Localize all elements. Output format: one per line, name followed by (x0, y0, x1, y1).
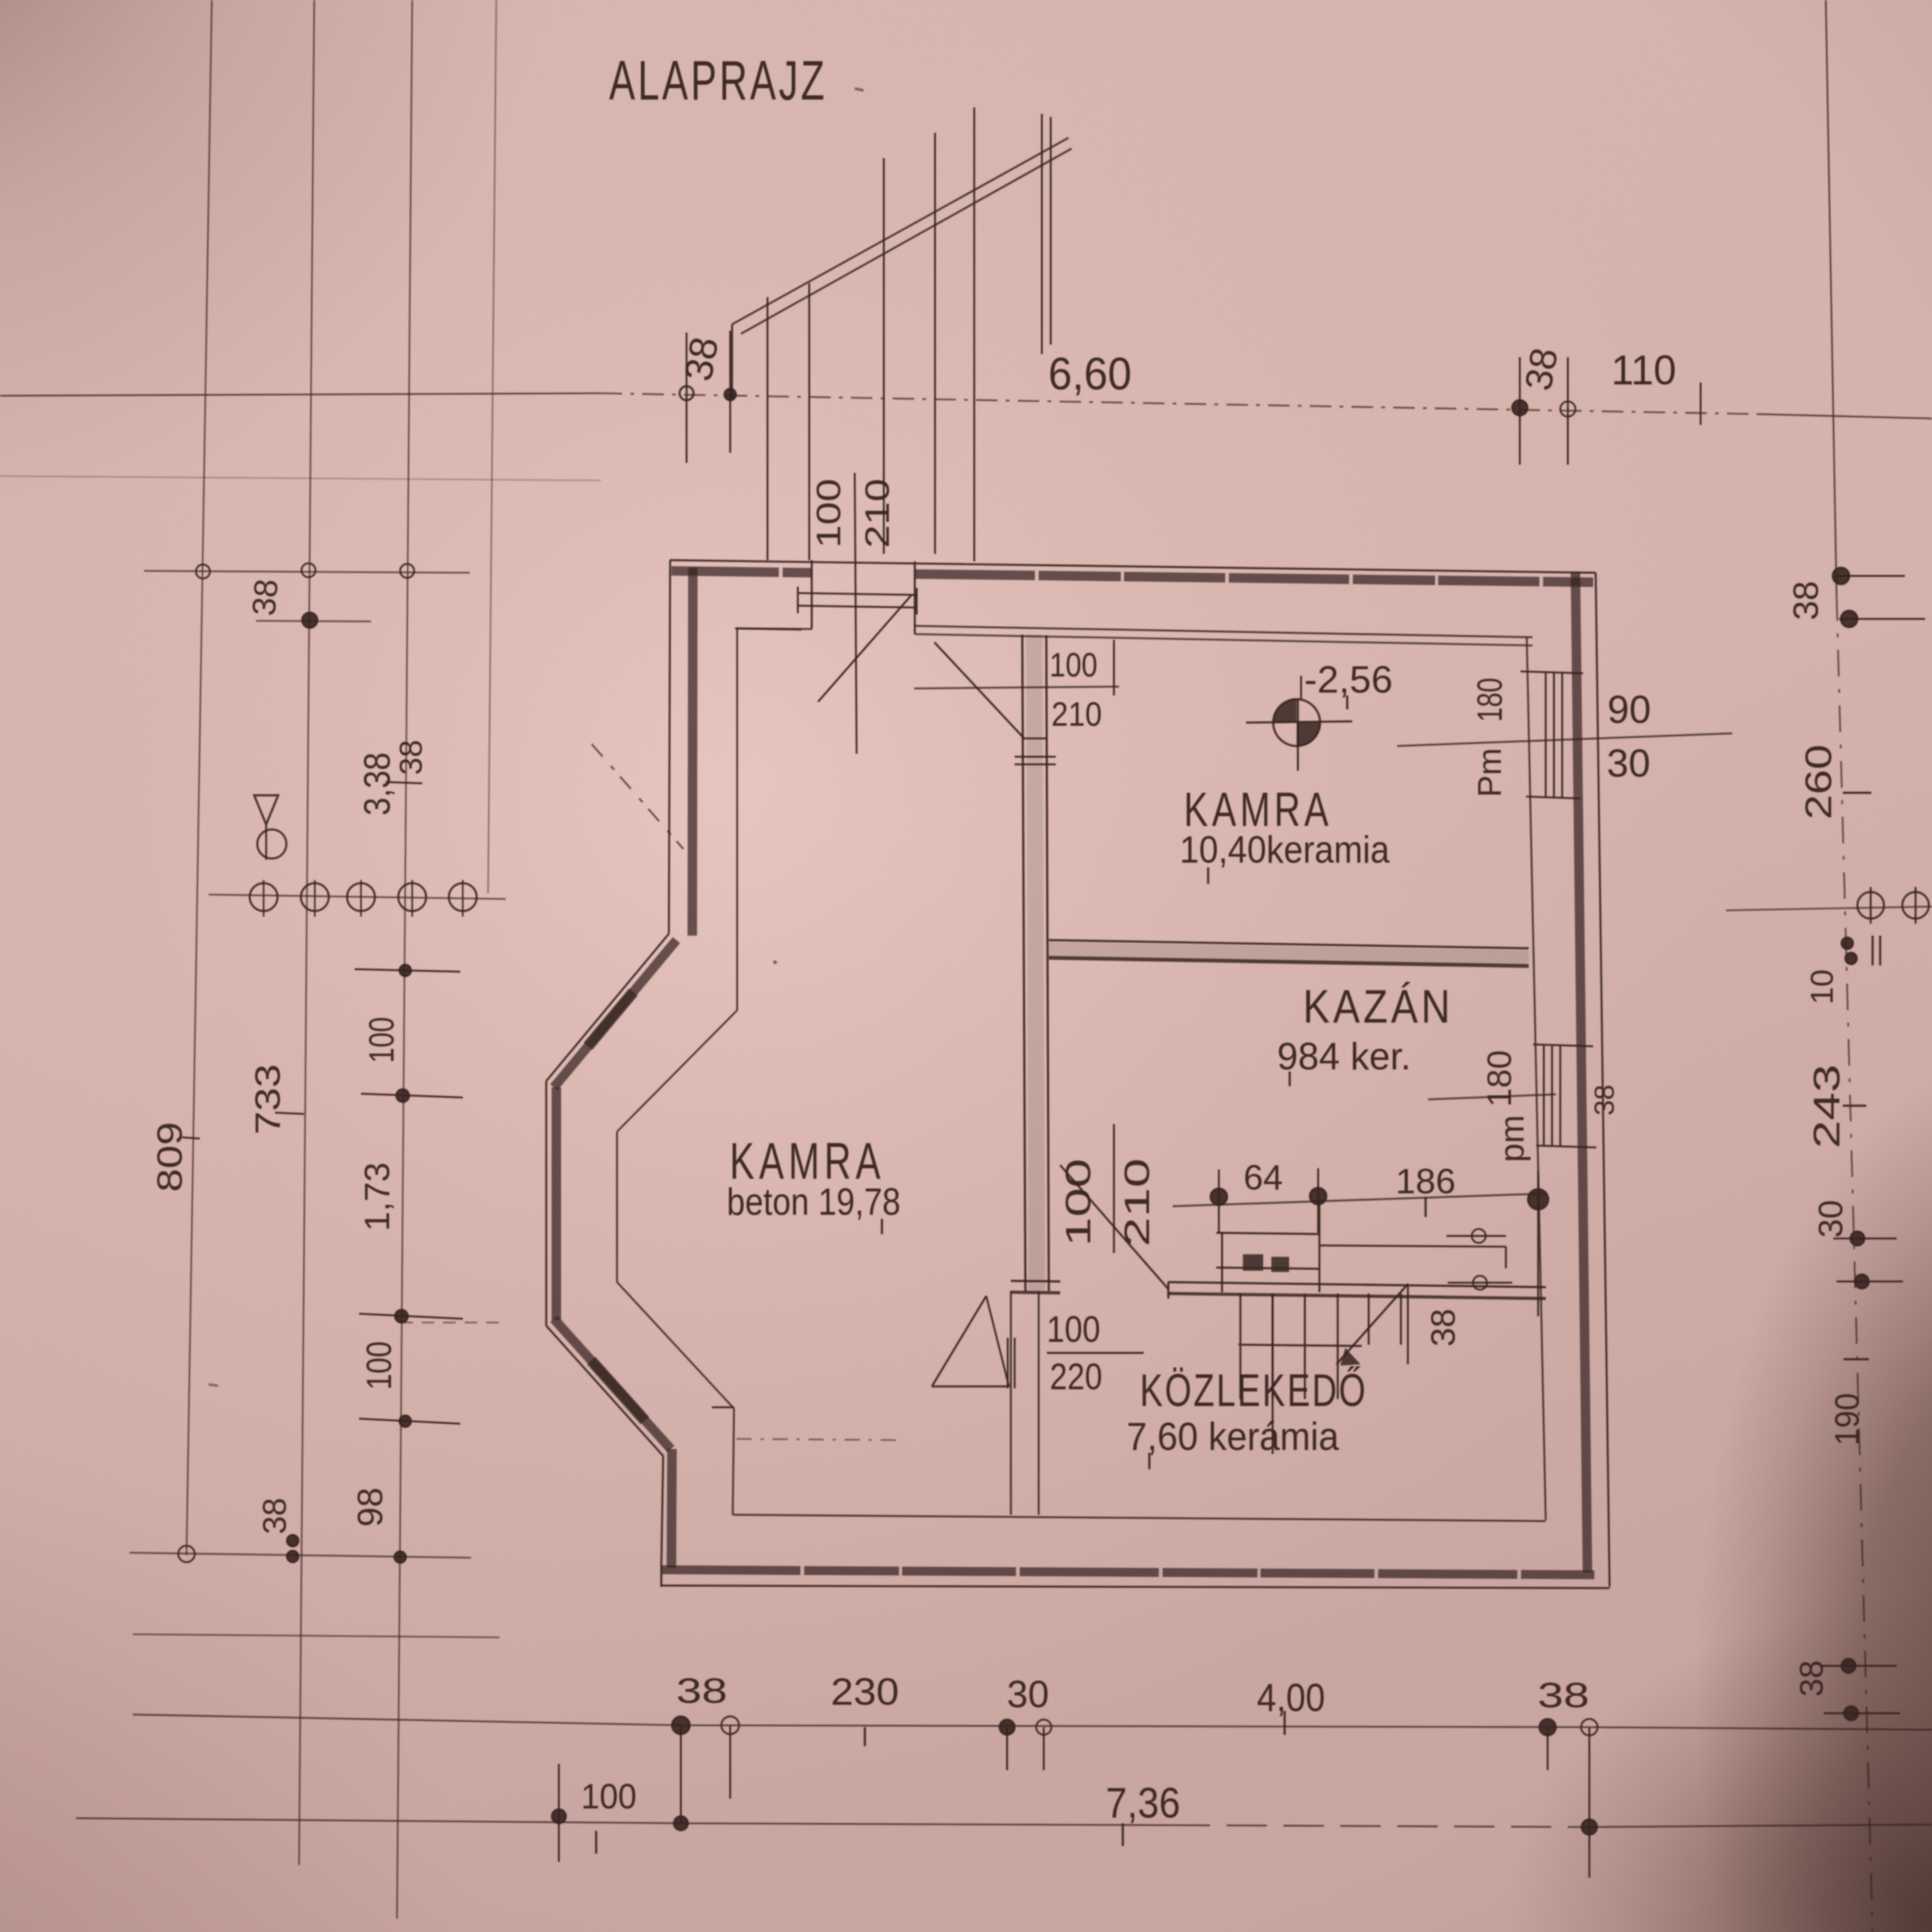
svg-text:38: 38 (246, 578, 286, 618)
svg-text:186: 186 (1396, 1161, 1456, 1201)
svg-text:190: 190 (1828, 1393, 1866, 1446)
svg-text:10,40keramia: 10,40keramia (1180, 829, 1390, 871)
svg-text:beton 19,78: beton 19,78 (727, 1181, 901, 1223)
svg-text:38: 38 (1517, 345, 1566, 393)
svg-text:38: 38 (1538, 1675, 1589, 1715)
svg-text:210: 210 (1051, 695, 1102, 733)
svg-text:38: 38 (257, 1498, 293, 1534)
svg-text:38: 38 (676, 334, 727, 384)
svg-text:220: 220 (1050, 1357, 1103, 1398)
svg-text:733: 733 (248, 1064, 288, 1135)
svg-text:210: 210 (1117, 1158, 1157, 1247)
svg-text:30: 30 (1007, 1673, 1049, 1716)
svg-text:100: 100 (1047, 1309, 1101, 1350)
svg-text:38: 38 (676, 1671, 728, 1711)
svg-text:30: 30 (1607, 742, 1651, 786)
svg-text:100: 100 (362, 1017, 401, 1063)
svg-text:Pm: Pm (1472, 748, 1508, 797)
svg-text:64: 64 (1244, 1158, 1283, 1197)
svg-text:984 ker.: 984 ker. (1277, 1036, 1411, 1078)
svg-text:6,60: 6,60 (1048, 349, 1132, 400)
svg-text:100: 100 (359, 1342, 399, 1390)
svg-text:3,38: 3,38 (357, 752, 398, 816)
svg-text:110: 110 (1611, 346, 1677, 393)
svg-text:-2,56: -2,56 (1304, 659, 1393, 701)
svg-text:ALAPRAJZ: ALAPRAJZ (609, 49, 828, 112)
svg-text:100: 100 (581, 1776, 637, 1816)
svg-text:10: 10 (1804, 969, 1840, 1005)
svg-text:pm: pm (1493, 1115, 1531, 1162)
svg-text:38: 38 (393, 740, 429, 775)
svg-text:210: 210 (859, 479, 896, 548)
svg-text:7,36: 7,36 (1106, 1779, 1180, 1827)
svg-text:180: 180 (1481, 1050, 1519, 1107)
svg-text:230: 230 (831, 1671, 899, 1713)
svg-text:180: 180 (1470, 678, 1510, 722)
svg-text:38: 38 (1424, 1309, 1462, 1347)
svg-text:98: 98 (350, 1488, 390, 1527)
svg-text:KAZÁN: KAZÁN (1303, 981, 1453, 1033)
svg-text:260: 260 (1799, 745, 1840, 820)
svg-text:100: 100 (810, 479, 848, 548)
svg-text:100: 100 (1049, 646, 1097, 684)
svg-text:90: 90 (1608, 688, 1651, 732)
svg-text:38: 38 (1589, 1085, 1620, 1116)
svg-text:1,73: 1,73 (357, 1163, 397, 1232)
svg-text:KÖZLEKEDŐ: KÖZLEKEDŐ (1140, 1366, 1367, 1416)
svg-text:38: 38 (1786, 581, 1826, 620)
svg-text:809: 809 (150, 1122, 190, 1192)
svg-text:4,00: 4,00 (1257, 1677, 1325, 1720)
svg-text:100: 100 (1058, 1159, 1098, 1247)
svg-text:7,60 kerámia: 7,60 kerámia (1127, 1415, 1339, 1459)
svg-text:30: 30 (1812, 1200, 1850, 1238)
svg-text:243: 243 (1807, 1065, 1848, 1149)
